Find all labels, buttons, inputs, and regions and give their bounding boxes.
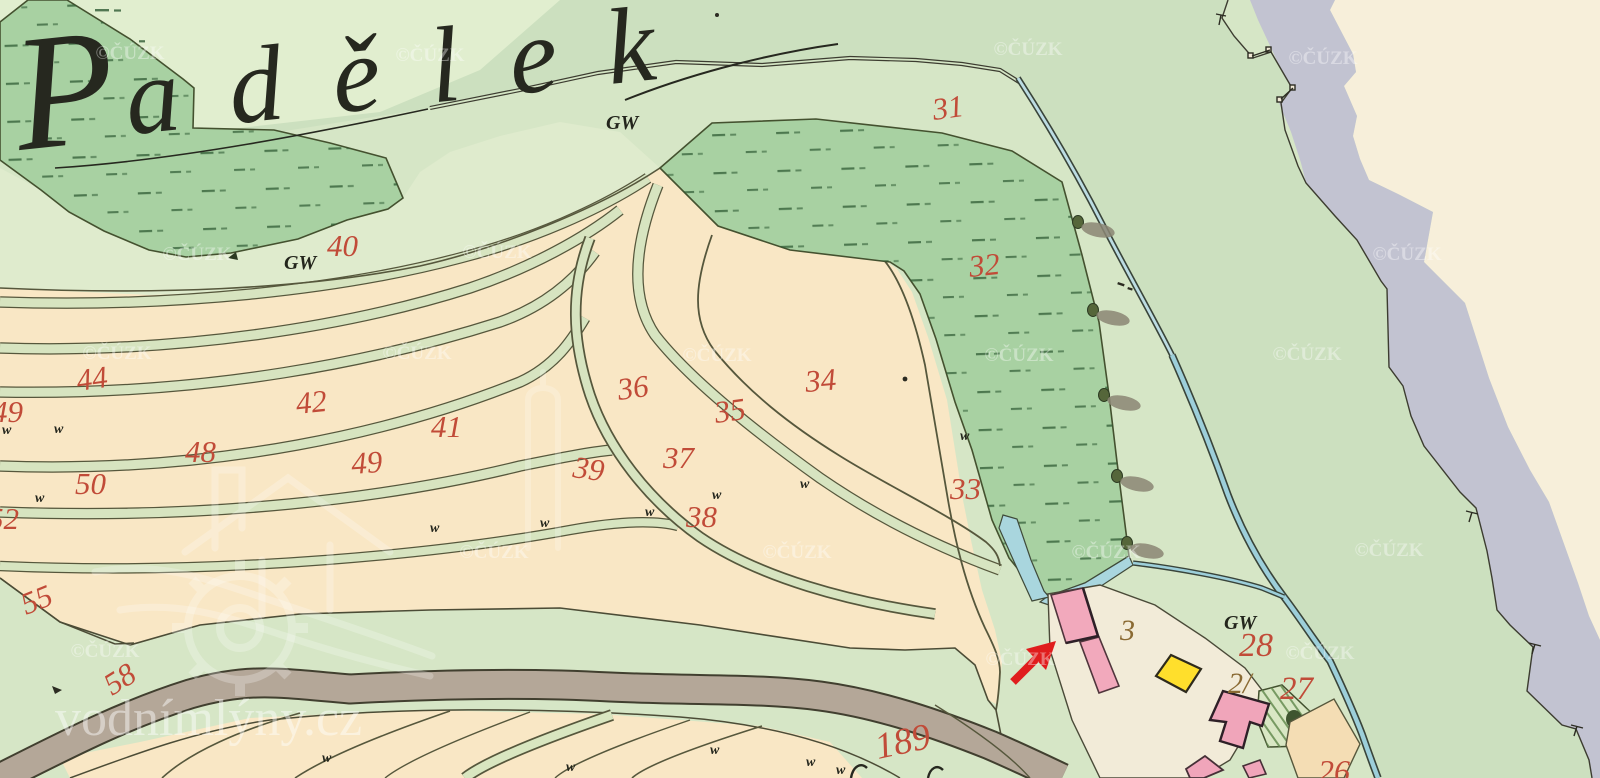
svg-text:©ČÚZK: ©ČÚZK: [462, 241, 531, 263]
svg-text:38: 38: [685, 499, 718, 534]
svg-text:©ČÚZK: ©ČÚZK: [984, 344, 1053, 366]
svg-text:©ČÚZK: ©ČÚZK: [1071, 541, 1140, 563]
svg-text:©ČÚZK: ©ČÚZK: [1288, 47, 1357, 69]
svg-text:P: P: [4, 0, 124, 186]
svg-text:31: 31: [929, 88, 966, 127]
svg-text:w: w: [836, 763, 846, 778]
svg-text:52: 52: [0, 501, 19, 536]
svg-text:©ČÚZK: ©ČÚZK: [762, 541, 831, 563]
svg-text:©ČÚZK: ©ČÚZK: [985, 648, 1054, 670]
svg-text:w: w: [2, 423, 12, 438]
svg-text:©ČÚZK: ©ČÚZK: [459, 541, 528, 563]
svg-text:GW: GW: [606, 112, 639, 134]
svg-text:©ČÚZK: ©ČÚZK: [70, 640, 139, 662]
svg-text:37: 37: [662, 440, 696, 475]
svg-text:28: 28: [1239, 627, 1273, 664]
svg-text:w: w: [960, 429, 970, 444]
svg-text:w: w: [322, 751, 332, 766]
svg-text:42: 42: [294, 383, 328, 421]
svg-text:3: 3: [1119, 614, 1135, 647]
svg-text:w: w: [712, 488, 722, 503]
svg-text:2/: 2/: [1228, 667, 1254, 700]
svg-text:36: 36: [614, 368, 651, 407]
svg-text:w: w: [566, 760, 576, 775]
svg-text:48: 48: [185, 434, 217, 469]
svg-text:GW: GW: [284, 252, 317, 274]
svg-text:34: 34: [803, 361, 838, 399]
svg-text:vodnímlýny.cz: vodnímlýny.cz: [55, 690, 362, 747]
svg-text:32: 32: [966, 246, 1001, 284]
svg-text:39: 39: [570, 449, 607, 488]
svg-text:©ČÚZK: ©ČÚZK: [682, 344, 751, 366]
svg-text:w: w: [54, 422, 64, 437]
svg-text:©ČÚZK: ©ČÚZK: [1372, 243, 1441, 265]
svg-text:w: w: [806, 755, 816, 770]
svg-text:©ČÚZK: ©ČÚZK: [1272, 343, 1341, 365]
svg-text:35: 35: [711, 391, 748, 430]
svg-text:©ČÚZK: ©ČÚZK: [95, 42, 164, 64]
svg-text:40: 40: [327, 228, 359, 263]
svg-text:w: w: [430, 521, 440, 536]
svg-text:©ČÚZK: ©ČÚZK: [382, 342, 451, 364]
svg-text:27: 27: [1280, 671, 1315, 707]
svg-text:©ČÚZK: ©ČÚZK: [1285, 642, 1354, 664]
svg-text:26: 26: [1318, 753, 1350, 778]
svg-text:©ČÚZK: ©ČÚZK: [993, 38, 1062, 60]
svg-text:44: 44: [74, 359, 110, 398]
svg-text:41: 41: [431, 409, 462, 444]
svg-text:©ČÚZK: ©ČÚZK: [1354, 539, 1423, 561]
svg-text:49: 49: [350, 444, 383, 481]
svg-text:©ČÚZK: ©ČÚZK: [82, 342, 151, 364]
svg-text:w: w: [540, 516, 550, 531]
svg-text:w: w: [35, 491, 45, 506]
svg-text:w: w: [645, 505, 655, 520]
svg-text:w: w: [710, 743, 720, 758]
svg-text:33: 33: [949, 471, 981, 506]
svg-text:©ČÚZK: ©ČÚZK: [162, 243, 231, 265]
svg-text:w: w: [800, 477, 810, 492]
svg-text:©ČÚZK: ©ČÚZK: [395, 44, 464, 66]
svg-text:50: 50: [75, 466, 107, 501]
